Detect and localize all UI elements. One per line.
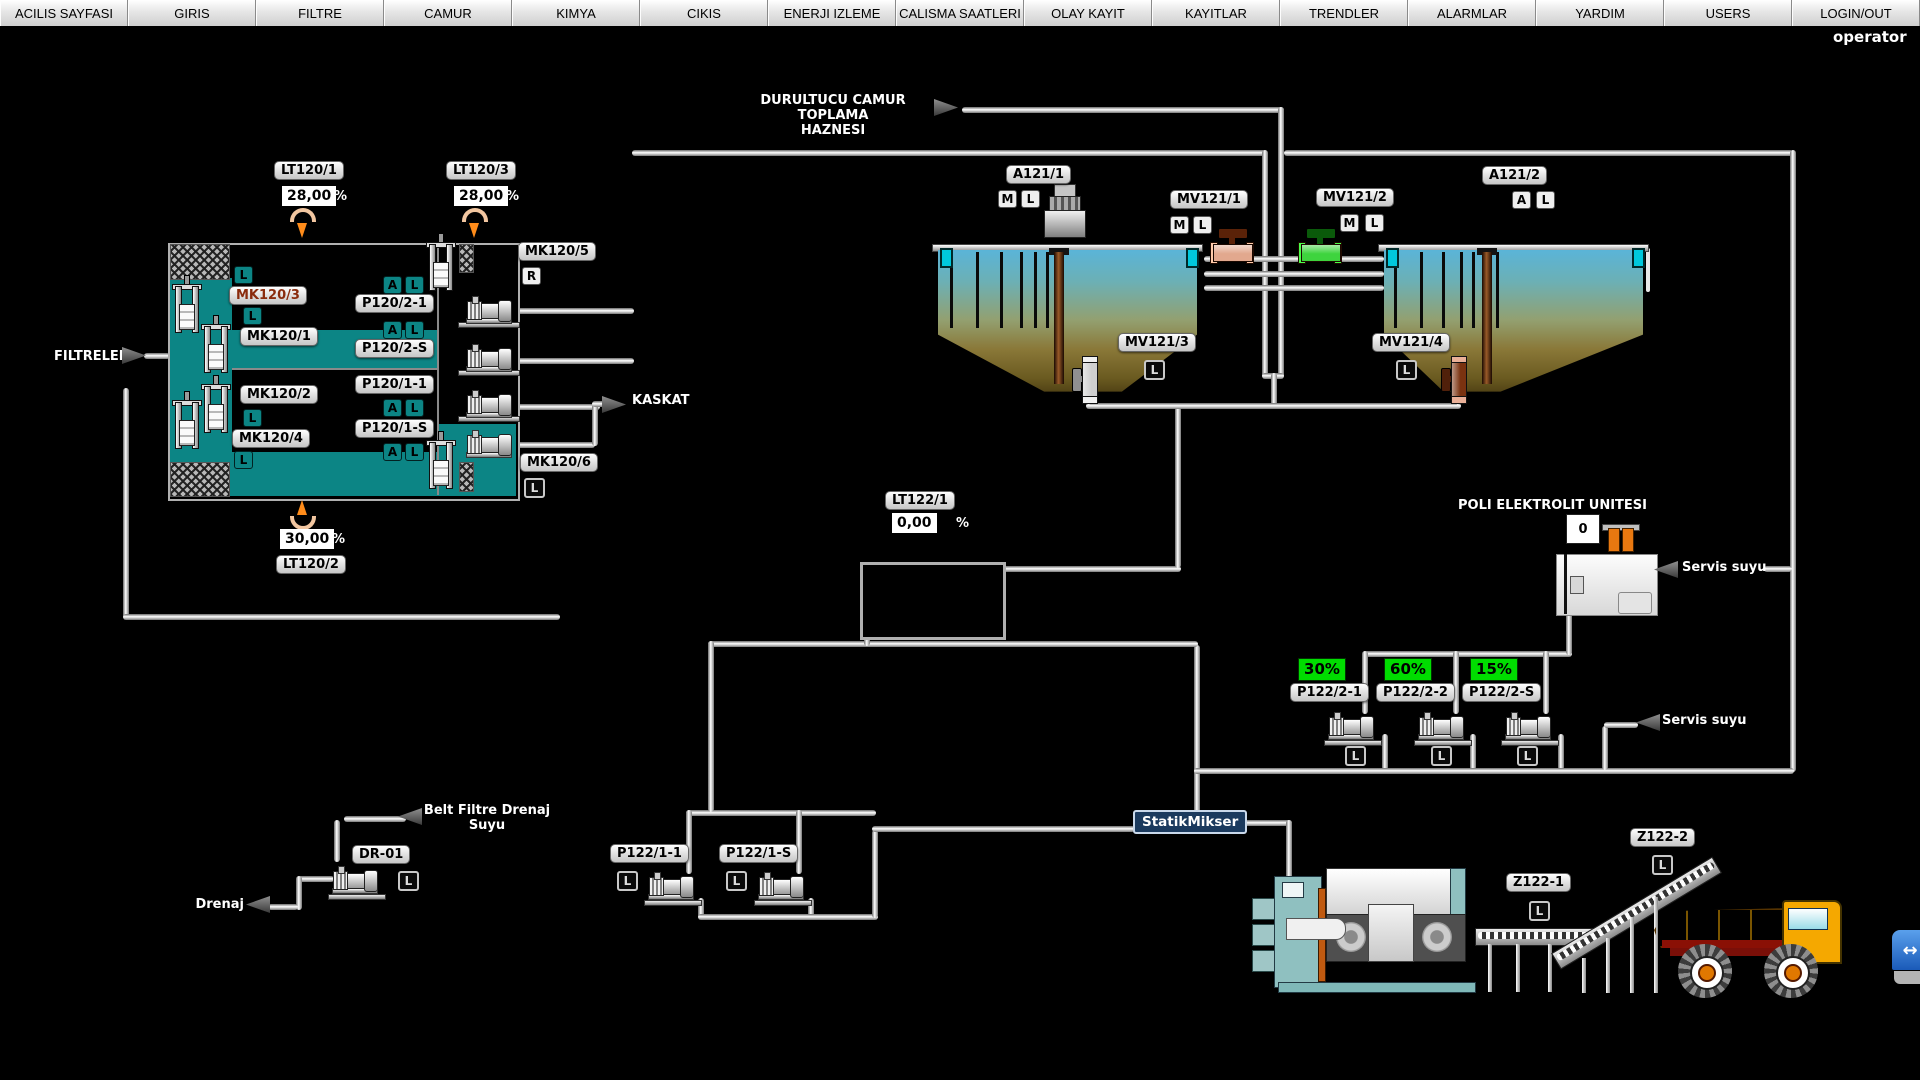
pipe-segment <box>517 358 634 364</box>
pipe-segment <box>1278 107 1284 378</box>
servis-suyu-text: Servis suyu <box>1682 560 1767 575</box>
belt-drain-line1: Belt Filtre Drenaj <box>420 803 554 818</box>
gate-valve-icon-mk120-6[interactable] <box>428 438 454 488</box>
pipe-segment <box>796 810 802 874</box>
gate-valve-icon-mk120-5[interactable] <box>428 240 454 290</box>
label-dr-01[interactable]: DR-01 <box>352 845 410 864</box>
label-mk120-2[interactable]: MK120/2 <box>240 385 318 404</box>
hatch-area <box>459 462 474 492</box>
pipe-segment <box>1604 722 1638 728</box>
valve-icon-mv121-1[interactable] <box>1210 226 1254 262</box>
pipe-segment <box>123 388 129 618</box>
label-p122-2-1[interactable]: P122/2-1 <box>1290 683 1369 702</box>
conveyor-leg <box>1548 944 1552 992</box>
statik-mikser-label[interactable]: StatikMikser <box>1133 810 1247 834</box>
menu-filtre[interactable]: FILTRE <box>256 0 384 26</box>
pipe-segment <box>298 876 334 882</box>
gate-valve-icon-mk120-2[interactable] <box>203 382 229 432</box>
belt-drain-line2: Suyu <box>420 818 554 833</box>
label-mk120-4[interactable]: MK120/4 <box>232 429 310 448</box>
speed-value-p122-2-s: 15% <box>1470 658 1518 681</box>
status-badge-l: L <box>405 443 424 461</box>
gate-valve-icon-mk120-4[interactable] <box>174 398 200 448</box>
pipe-segment <box>1602 726 1608 770</box>
valve-icon-mv121-2[interactable] <box>1298 226 1342 262</box>
label-mk120-1[interactable]: MK120/1 <box>240 327 318 346</box>
pipe-segment <box>872 826 1135 832</box>
valve-icon-mv121-4[interactable] <box>1441 356 1475 402</box>
menu-acilis-sayfasi[interactable]: ACILIS SAYFASI <box>0 0 128 26</box>
status-badge-l: L <box>726 871 747 891</box>
pump-icon-p122-2-s[interactable] <box>1505 712 1551 740</box>
pipe-segment <box>698 914 878 920</box>
pump-icon[interactable] <box>466 344 512 372</box>
status-badge-l: L <box>234 451 253 469</box>
pipe-segment <box>708 641 1198 647</box>
pipe-segment <box>268 904 298 910</box>
label-z122-1[interactable]: Z122-1 <box>1506 873 1571 892</box>
label-p120-1-1[interactable]: P120/1-1 <box>355 375 434 394</box>
status-badge-l: L <box>1517 746 1538 766</box>
conveyor-leg <box>1630 917 1634 993</box>
flow-arrow-left-icon <box>246 896 270 913</box>
value-lt120-3: 28,00 <box>454 186 508 206</box>
pump-icon[interactable] <box>466 430 512 458</box>
pipe-segment <box>872 830 878 918</box>
label-mk120-5[interactable]: MK120/5 <box>518 242 596 261</box>
remote-access-icon[interactable]: ↔ <box>1892 930 1920 984</box>
status-badge-l: L <box>1345 746 1366 766</box>
pipe-segment <box>1453 651 1459 714</box>
poli-unit-title: POLI ELEKTROLIT UNITESI <box>1458 498 1647 513</box>
status-badge-a: A <box>383 321 402 339</box>
pipe-segment <box>632 150 1266 156</box>
label-lt120-1[interactable]: LT120/1 <box>274 161 344 180</box>
flow-arrow-left-icon <box>1636 714 1660 731</box>
pipe-segment <box>1086 403 1461 409</box>
servis-suyu-text: Servis suyu <box>1662 713 1747 728</box>
label-p120-2-s[interactable]: P120/2-S <box>355 339 434 358</box>
filtreler-text: FILTRELER <box>54 349 129 364</box>
value-lt120-2: 30,00 <box>280 529 334 549</box>
label-mv121-3[interactable]: MV121/3 <box>1118 333 1196 352</box>
decanter-centrifuge-icon[interactable] <box>1252 862 1482 997</box>
pipe-segment <box>144 353 170 359</box>
menu-trendler[interactable]: TRENDLER <box>1280 0 1408 26</box>
pipe-segment <box>1001 566 1181 572</box>
label-p122-1-1[interactable]: P122/1-1 <box>610 844 689 863</box>
scada-screen: ACILIS SAYFASI GIRIS FILTRE CAMUR KIMYA … <box>0 0 1920 1080</box>
pipe-segment <box>1566 612 1572 655</box>
flow-arrow-right-icon <box>122 347 146 364</box>
status-badge-l: L <box>1396 360 1417 380</box>
status-badge-l: L <box>1144 360 1165 380</box>
pump-icon-p122-1-s[interactable] <box>758 872 804 900</box>
pipe-segment <box>962 107 1284 113</box>
conveyor-leg <box>1606 938 1610 993</box>
pump-icon-p122-1-1[interactable] <box>648 872 694 900</box>
durultucu-title: DURULTUCU CAMUR TOPLAMA HAZNESI <box>728 93 938 138</box>
label-lt120-2[interactable]: LT120/2 <box>276 555 346 574</box>
label-p120-1-s[interactable]: P120/1-S <box>355 419 434 438</box>
hatch-area <box>170 244 230 280</box>
status-badge-l: L <box>1193 216 1212 234</box>
status-badge-a: A <box>383 443 402 461</box>
status-badge-l: L <box>1529 901 1550 921</box>
label-a121-2[interactable]: A121/2 <box>1482 166 1547 185</box>
pipe-segment <box>1646 250 1650 292</box>
pipe-segment <box>1175 407 1181 568</box>
status-badge-m: M <box>1340 214 1359 232</box>
pipe-segment <box>1364 651 1572 657</box>
conveyor-leg <box>1516 944 1520 992</box>
status-badge-l: L <box>243 409 262 427</box>
unit-lt122-1: % <box>956 516 969 531</box>
status-badge-l: L <box>524 478 545 498</box>
unit-lt120-2: % <box>332 532 345 547</box>
pipe-segment <box>517 404 600 410</box>
valve-icon-mv121-3[interactable] <box>1072 356 1106 402</box>
status-badge-m: M <box>998 190 1017 208</box>
clarifier-tank-a121-2[interactable] <box>1384 244 1643 396</box>
menu-kayitlar[interactable]: KAYITLAR <box>1152 0 1280 26</box>
pipe-segment <box>1194 768 1794 774</box>
belt-drain-text: Belt Filtre Drenaj Suyu <box>420 803 554 833</box>
speed-value-p122-2-2: 60% <box>1384 658 1432 681</box>
conveyor-leg <box>1582 958 1586 993</box>
pump-icon-dr-01[interactable] <box>332 866 378 894</box>
pipe-segment <box>1382 734 1388 770</box>
pipe-segment <box>123 614 560 620</box>
pipe-segment <box>517 308 634 314</box>
pipe-segment <box>1204 285 1384 291</box>
speed-value-p122-2-1: 30% <box>1298 658 1346 681</box>
logged-in-user: operator <box>1833 28 1907 46</box>
label-mk120-6[interactable]: MK120/6 <box>520 453 598 472</box>
flow-arrow-right-icon <box>602 396 626 413</box>
label-mv121-1[interactable]: MV121/1 <box>1170 190 1248 209</box>
pipe-segment <box>334 820 340 862</box>
label-a121-1[interactable]: A121/1 <box>1006 165 1071 184</box>
label-mk120-3[interactable]: MK120/3 <box>229 286 307 305</box>
status-badge-a: A <box>383 399 402 417</box>
pipe-segment <box>1790 150 1796 772</box>
conveyor-leg <box>1488 944 1492 992</box>
value-lt122-1: 0,00 <box>892 513 937 533</box>
pump-shelf <box>328 894 386 900</box>
pipe-segment <box>686 810 692 874</box>
sludge-holding-tank <box>860 562 1006 640</box>
pump-shelf <box>644 900 702 906</box>
unit-lt120-1: % <box>334 189 347 204</box>
menu-bar: ACILIS SAYFASI GIRIS FILTRE CAMUR KIMYA … <box>0 0 1920 29</box>
menu-calisma-saatleri[interactable]: CALISMA SAATLERI <box>896 0 1024 26</box>
status-badge-l: L <box>405 276 424 294</box>
flow-arrow-right-icon <box>934 99 958 116</box>
durultucu-title-line1: DURULTUCU CAMUR TOPLAMA <box>728 93 938 123</box>
pipe-segment <box>592 404 598 446</box>
label-p122-2-2[interactable]: P122/2-2 <box>1376 683 1455 702</box>
menu-camur[interactable]: CAMUR <box>384 0 512 26</box>
menu-kimya[interactable]: KIMYA <box>512 0 640 26</box>
label-mv121-2[interactable]: MV121/2 <box>1316 188 1394 207</box>
menu-enerji-izleme[interactable]: ENERJI IZLEME <box>768 0 896 26</box>
pump-icon[interactable] <box>466 390 512 418</box>
status-badge-l: L <box>1021 190 1040 208</box>
status-badge-l: L <box>1365 214 1384 232</box>
status-badge-a: A <box>383 276 402 294</box>
status-badge-l: L <box>234 266 253 284</box>
value-lt120-1: 28,00 <box>282 186 336 206</box>
label-p122-1-s[interactable]: P122/1-S <box>719 844 798 863</box>
status-badge-l: L <box>1536 191 1555 209</box>
hatch-area <box>170 462 230 497</box>
pump-icon[interactable] <box>466 296 512 324</box>
unit-lt120-3: % <box>506 189 519 204</box>
remote-access-arrows-icon: ↔ <box>1892 930 1920 970</box>
status-badge-m: M <box>1170 216 1189 234</box>
poly-level-value: 0 <box>1566 514 1600 544</box>
label-lt122-1[interactable]: LT122/1 <box>885 491 955 510</box>
status-badge-l: L <box>405 321 424 339</box>
label-z122-2[interactable]: Z122-2 <box>1630 828 1695 847</box>
pump-shelf <box>754 900 812 906</box>
menu-olay-kayit[interactable]: OLAY KAYIT <box>1024 0 1152 26</box>
pipe-segment <box>344 816 406 822</box>
pump-icon-p122-2-2[interactable] <box>1418 712 1464 740</box>
menu-users[interactable]: USERS <box>1664 0 1792 26</box>
menu-yardim[interactable]: YARDIM <box>1536 0 1664 26</box>
pipe-segment <box>708 641 714 812</box>
menu-alarmlar[interactable]: ALARMLAR <box>1408 0 1536 26</box>
status-badge-l: L <box>1652 855 1673 875</box>
gate-valve-icon-mk120-1[interactable] <box>203 322 229 372</box>
clarifier-drive-motor-icon[interactable] <box>1044 184 1084 238</box>
menu-login-out[interactable]: LOGIN/OUT <box>1792 0 1920 26</box>
label-p122-2-s[interactable]: P122/2-S <box>1462 683 1541 702</box>
label-p120-2-1[interactable]: P120/2-1 <box>355 294 434 313</box>
status-badge-l: L <box>243 307 262 325</box>
pipe-segment <box>1194 645 1200 813</box>
durultucu-title-line2: HAZNESI <box>728 123 938 138</box>
pipe-segment <box>1262 150 1268 378</box>
label-lt120-3[interactable]: LT120/3 <box>446 161 516 180</box>
pipe-segment <box>517 442 595 448</box>
hatch-area <box>459 244 474 273</box>
divider <box>232 368 437 370</box>
kaskat-text: KASKAT <box>632 393 690 408</box>
status-badge-l: L <box>1431 746 1452 766</box>
status-badge-r: R <box>522 267 541 285</box>
level-sensor-icon[interactable] <box>289 208 317 240</box>
menu-cikis[interactable]: CIKIS <box>640 0 768 26</box>
gate-valve-icon-mk120-3[interactable] <box>174 282 200 332</box>
status-badge-l: L <box>398 871 419 891</box>
status-badge-a: A <box>1512 191 1531 209</box>
level-sensor-icon[interactable] <box>289 498 317 530</box>
drenaj-text: Drenaj <box>192 897 244 912</box>
pipe-segment <box>1271 373 1277 407</box>
flow-arrow-left-icon <box>398 808 422 825</box>
label-mv121-4[interactable]: MV121/4 <box>1372 333 1450 352</box>
status-badge-l: L <box>405 399 424 417</box>
level-sensor-icon[interactable] <box>461 208 489 240</box>
pipe-segment <box>1764 566 1792 572</box>
dump-truck-icon <box>1652 896 1842 996</box>
pump-icon-p122-2-1[interactable] <box>1328 712 1374 740</box>
remote-access-base <box>1894 971 1920 984</box>
pipe-segment <box>1284 150 1793 156</box>
pipe-segment <box>1204 271 1384 277</box>
pipe-segment <box>1543 651 1549 714</box>
status-badge-l: L <box>617 871 638 891</box>
poly-electrolyte-unit-icon[interactable]: 0 <box>1552 514 1662 616</box>
menu-giris[interactable]: GIRIS <box>128 0 256 26</box>
pipe-segment <box>686 810 876 816</box>
